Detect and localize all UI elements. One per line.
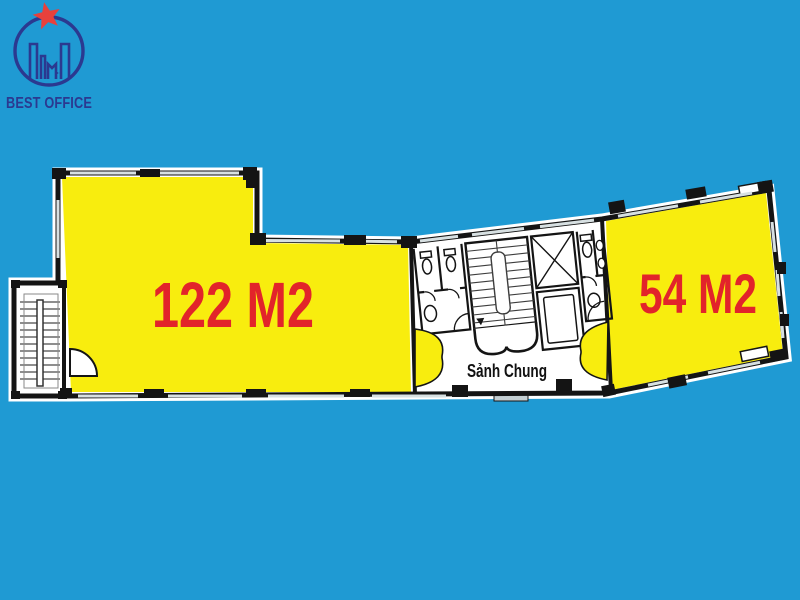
floorplan-canvas: BEST OFFICE <box>0 0 800 600</box>
unit-122-label: 122 M2 <box>152 269 314 341</box>
logo-brand-text: BEST OFFICE <box>6 95 92 112</box>
elevator <box>537 288 585 350</box>
unit-54-label: 54 M2 <box>639 262 757 325</box>
stair-rail <box>37 300 43 386</box>
main-staircase <box>465 237 538 356</box>
elevator-shaft <box>531 232 578 288</box>
floorplan-page: BEST OFFICE <box>0 0 800 600</box>
lobby-label: Sảnh Chung <box>467 361 547 381</box>
